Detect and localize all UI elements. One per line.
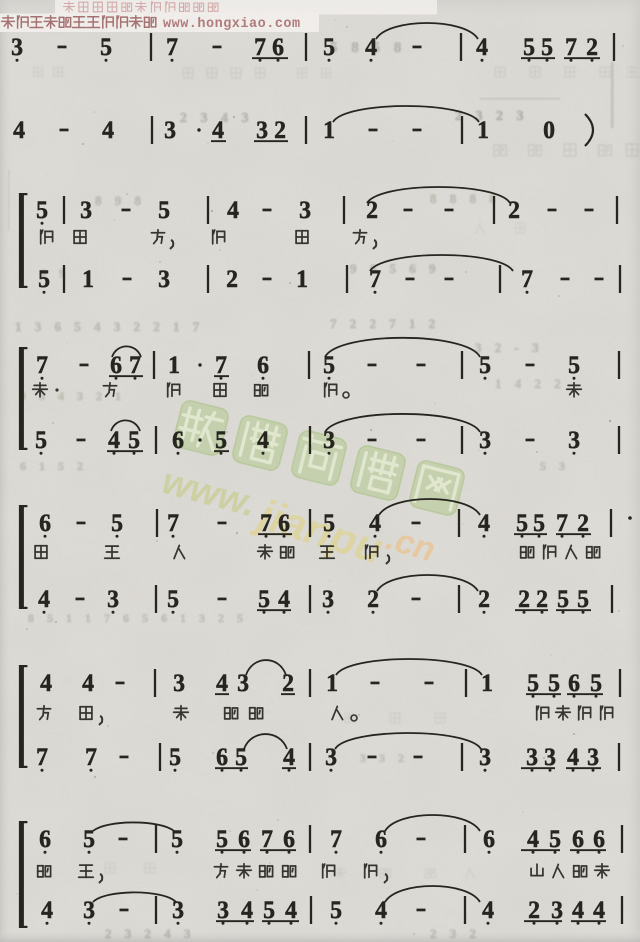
svg-text:7: 7 [36, 351, 48, 379]
svg-text:3: 3 [80, 196, 92, 224]
svg-text:4: 4 [41, 896, 53, 924]
svg-text:4: 4 [212, 116, 224, 144]
svg-text:3: 3 [526, 743, 538, 771]
svg-text:5: 5 [263, 896, 275, 924]
svg-text:7: 7 [330, 825, 342, 853]
svg-text:1: 1 [481, 669, 493, 697]
svg-text:5: 5 [216, 825, 228, 853]
svg-text:7: 7 [129, 351, 141, 379]
svg-text:3: 3 [544, 743, 556, 771]
svg-text:4: 4 [40, 669, 52, 697]
svg-text:5: 5 [128, 426, 140, 454]
svg-text:5: 5 [479, 351, 491, 379]
svg-text:5: 5 [171, 825, 183, 853]
svg-text:6: 6 [238, 825, 250, 853]
svg-text:5: 5 [258, 585, 270, 613]
svg-text:4: 4 [278, 585, 290, 613]
svg-text:4: 4 [365, 33, 377, 61]
svg-text:2 3 2 4 3: 2 3 2 4 3 [105, 926, 196, 941]
svg-text:2: 2 [478, 585, 490, 613]
svg-text:3: 3 [587, 743, 599, 771]
svg-text:6: 6 [39, 825, 51, 853]
svg-text:9 6 5 6 9: 9 6 5 6 9 [350, 261, 441, 276]
svg-text:3: 3 [107, 585, 119, 613]
svg-text:5: 5 [158, 196, 170, 224]
svg-text:5: 5 [568, 351, 580, 379]
svg-text:5: 5 [323, 509, 335, 537]
svg-text:2 3 2: 2 3 2 [430, 926, 481, 941]
svg-text:1: 1 [82, 265, 94, 293]
svg-text:2: 2 [586, 33, 598, 61]
svg-text:8 5 1 1 7 6 5 6 1 3 2 5: 8 5 1 1 7 6 5 6 1 3 2 5 [28, 611, 248, 625]
svg-text:5: 5 [557, 585, 569, 613]
svg-text:5: 5 [523, 33, 535, 61]
svg-text:6: 6 [572, 825, 584, 853]
svg-text:2: 2 [226, 265, 238, 293]
svg-text:6: 6 [216, 743, 228, 771]
svg-text:4: 4 [482, 896, 494, 924]
svg-text:5: 5 [169, 743, 181, 771]
svg-text:4: 4 [108, 426, 120, 454]
svg-text:3 3 2: 3 3 2 [360, 751, 409, 765]
svg-text:4: 4 [102, 116, 114, 144]
svg-text:5: 5 [330, 896, 342, 924]
svg-text:3: 3 [11, 33, 23, 61]
svg-text:5: 5 [35, 426, 47, 454]
svg-text:6: 6 [172, 426, 184, 454]
svg-text:5 3: 5 3 [540, 459, 570, 473]
svg-text:2 3 2 3: 2 3 2 3 [455, 109, 529, 124]
svg-text:6: 6 [272, 33, 284, 61]
svg-text:4: 4 [38, 585, 50, 613]
svg-text:7: 7 [36, 743, 48, 771]
svg-text:2: 2 [518, 585, 530, 613]
svg-text:2: 2 [577, 509, 589, 537]
svg-text:2: 2 [528, 896, 540, 924]
svg-text:4: 4 [572, 896, 584, 924]
svg-text:6: 6 [257, 351, 269, 379]
svg-text:1: 1 [168, 351, 180, 379]
svg-text:4: 4 [82, 669, 94, 697]
svg-text:6: 6 [593, 825, 605, 853]
svg-text:3: 3 [83, 896, 95, 924]
svg-text:0 5 4 3 2 1: 0 5 4 3 2 1 [20, 389, 126, 403]
svg-text:6: 6 [483, 825, 495, 853]
svg-text:7: 7 [565, 33, 577, 61]
svg-text:2: 2 [536, 585, 548, 613]
svg-text:7: 7 [556, 509, 568, 537]
svg-text:5: 5 [215, 426, 227, 454]
svg-text:5: 5 [549, 825, 561, 853]
svg-text:4: 4 [227, 196, 239, 224]
svg-text:6: 6 [283, 825, 295, 853]
svg-text:5: 5 [541, 33, 553, 61]
svg-text:3: 3 [256, 116, 268, 144]
svg-text:5: 5 [83, 825, 95, 853]
svg-text:3: 3 [568, 426, 580, 454]
svg-text:5: 5 [590, 669, 602, 697]
svg-text:6 1 5 2: 6 1 5 2 [20, 459, 88, 473]
svg-text:3: 3 [551, 896, 563, 924]
svg-text:1 4 2 2: 1 4 2 2 [495, 376, 566, 391]
svg-text:6: 6 [568, 669, 580, 697]
svg-text:5: 5 [577, 585, 589, 613]
svg-text:5: 5 [548, 669, 560, 697]
svg-text:4: 4 [567, 743, 579, 771]
svg-text:4: 4 [593, 896, 605, 924]
svg-text:7: 7 [261, 825, 273, 853]
svg-text:6: 6 [39, 509, 51, 537]
svg-text:2: 2 [274, 116, 286, 144]
svg-text:7: 7 [254, 33, 266, 61]
svg-text:5: 5 [38, 265, 50, 293]
svg-text:3: 3 [322, 585, 334, 613]
svg-text:6: 6 [278, 509, 290, 537]
svg-text:7: 7 [260, 509, 272, 537]
svg-text:3: 3 [217, 896, 229, 924]
svg-text:2: 2 [508, 196, 520, 224]
svg-text:www.hongxiao.com: www.hongxiao.com [163, 17, 301, 32]
svg-text:3: 3 [172, 896, 184, 924]
svg-text:3: 3 [479, 426, 491, 454]
svg-text:4: 4 [241, 896, 253, 924]
svg-text:7: 7 [167, 509, 179, 537]
svg-text:7: 7 [521, 265, 533, 293]
svg-text:2: 2 [282, 669, 294, 697]
svg-text:7: 7 [85, 743, 97, 771]
svg-text:0: 0 [543, 116, 555, 144]
svg-text:5: 5 [111, 509, 123, 537]
svg-text:3: 3 [173, 669, 185, 697]
svg-text:4: 4 [283, 743, 295, 771]
svg-text:5: 5 [100, 33, 112, 61]
svg-text:1: 1 [296, 265, 308, 293]
svg-text:5: 5 [516, 509, 528, 537]
svg-text:5: 5 [533, 509, 545, 537]
svg-text:8 9 8: 8 9 8 [95, 193, 146, 208]
svg-text:5: 5 [36, 196, 48, 224]
svg-text:4: 4 [527, 825, 539, 853]
svg-text:5: 5 [527, 669, 539, 697]
svg-text:1 3 6 5 4 3 2 2 1 7: 1 3 6 5 4 3 2 2 1 7 [15, 319, 204, 334]
svg-text:3: 3 [158, 265, 170, 293]
svg-text:3: 3 [299, 196, 311, 224]
svg-text:4: 4 [216, 669, 228, 697]
svg-text:7 2 2 7 1 2: 7 2 2 7 1 2 [330, 316, 440, 331]
svg-text:5: 5 [167, 585, 179, 613]
svg-text:3: 3 [164, 116, 176, 144]
svg-text:4: 4 [257, 426, 269, 454]
svg-text:4: 4 [13, 116, 25, 144]
svg-text:7: 7 [215, 351, 227, 379]
svg-text:7: 7 [166, 33, 178, 61]
svg-text:5: 5 [323, 33, 335, 61]
svg-text:4: 4 [285, 896, 297, 924]
